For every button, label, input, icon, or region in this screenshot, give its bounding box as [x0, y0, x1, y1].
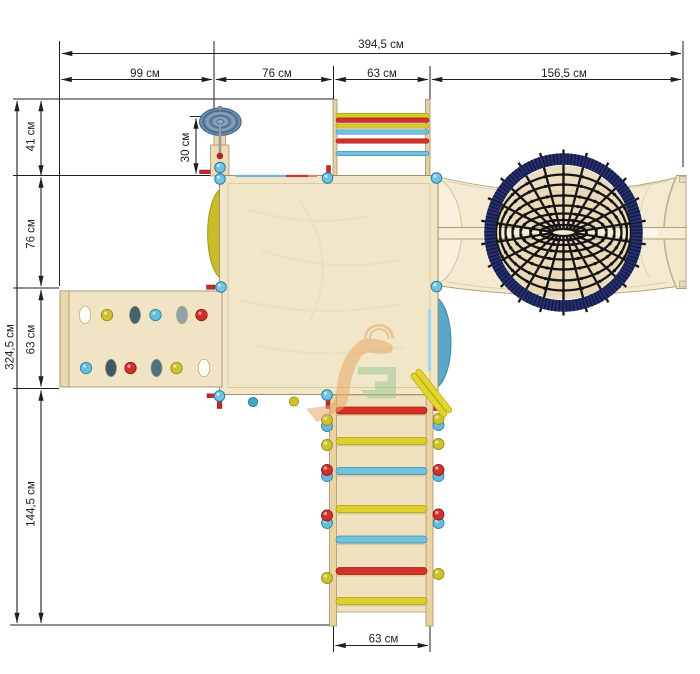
svg-text:394,5 см: 394,5 см — [358, 39, 404, 51]
svg-text:63 см: 63 см — [26, 325, 38, 355]
svg-text:63 см: 63 см — [369, 634, 399, 646]
svg-text:144,5 см: 144,5 см — [26, 481, 38, 527]
svg-text:76 см: 76 см — [26, 219, 38, 249]
svg-text:63 см: 63 см — [367, 68, 397, 80]
svg-text:30 см: 30 см — [180, 133, 192, 163]
svg-text:76 см: 76 см — [262, 68, 292, 80]
svg-text:41 см: 41 см — [26, 122, 38, 152]
svg-text:99 см: 99 см — [130, 68, 160, 80]
svg-text:324,5 см: 324,5 см — [5, 324, 17, 370]
svg-text:156,5 см: 156,5 см — [541, 68, 587, 80]
